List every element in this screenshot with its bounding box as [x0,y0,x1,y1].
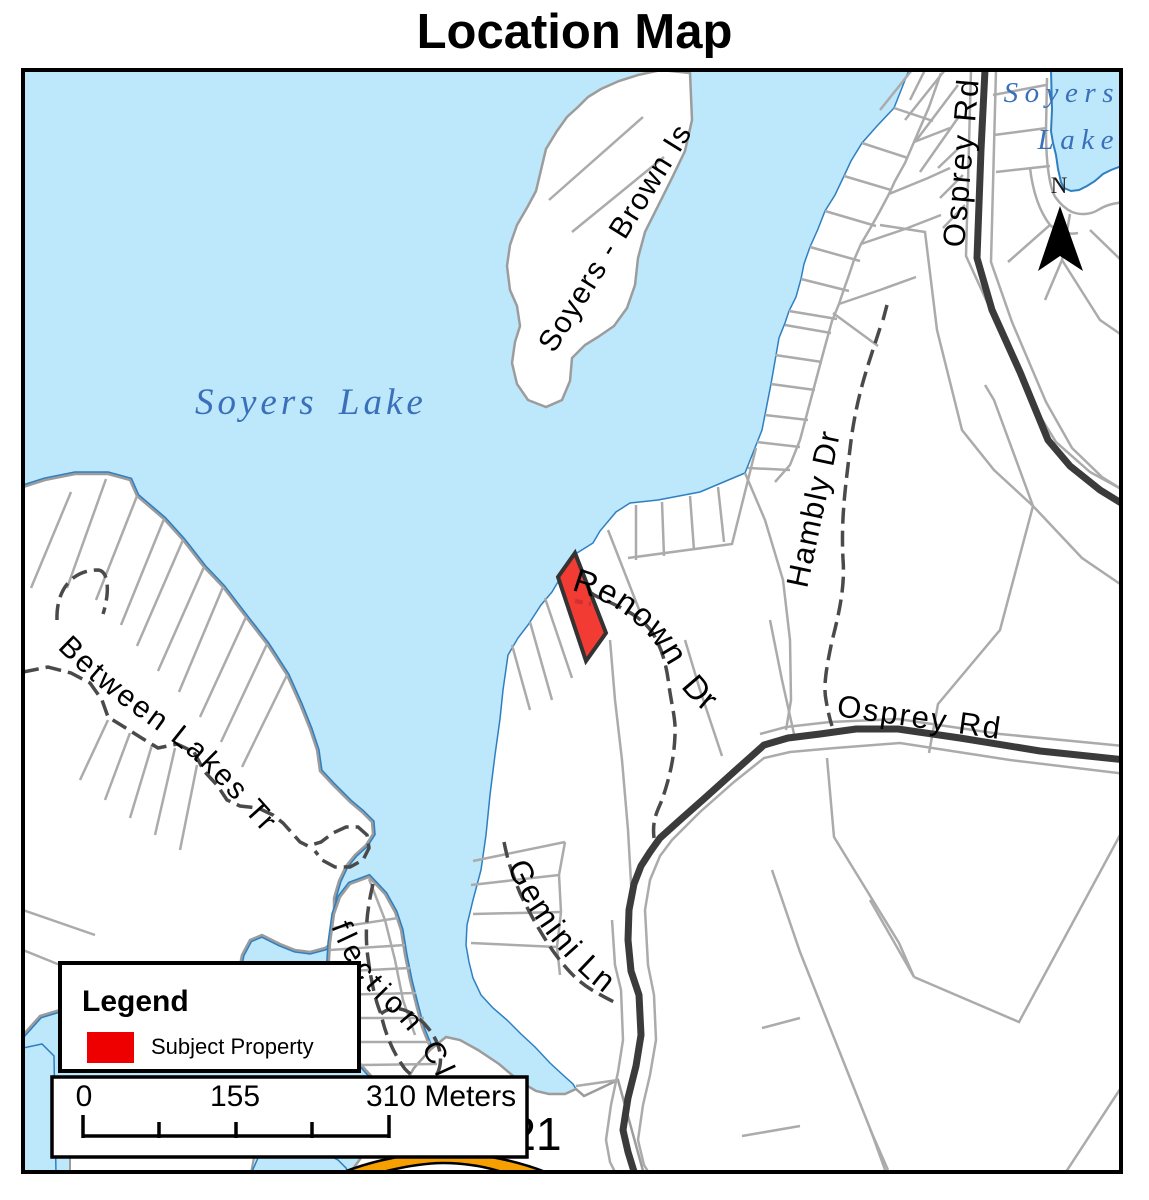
svg-text:Legend: Legend [82,985,189,1018]
svg-text:Lake: Lake [1037,124,1120,156]
svg-text:155: 155 [210,1080,260,1113]
svg-text:310 Meters: 310 Meters [366,1080,516,1113]
svg-text:Subject Property: Subject Property [151,1034,314,1059]
svg-text:N: N [1051,173,1068,198]
svg-text:Soyers: Soyers [1004,77,1120,109]
svg-text:0: 0 [76,1080,93,1113]
svg-text:Soyers Lake: Soyers Lake [195,382,427,423]
